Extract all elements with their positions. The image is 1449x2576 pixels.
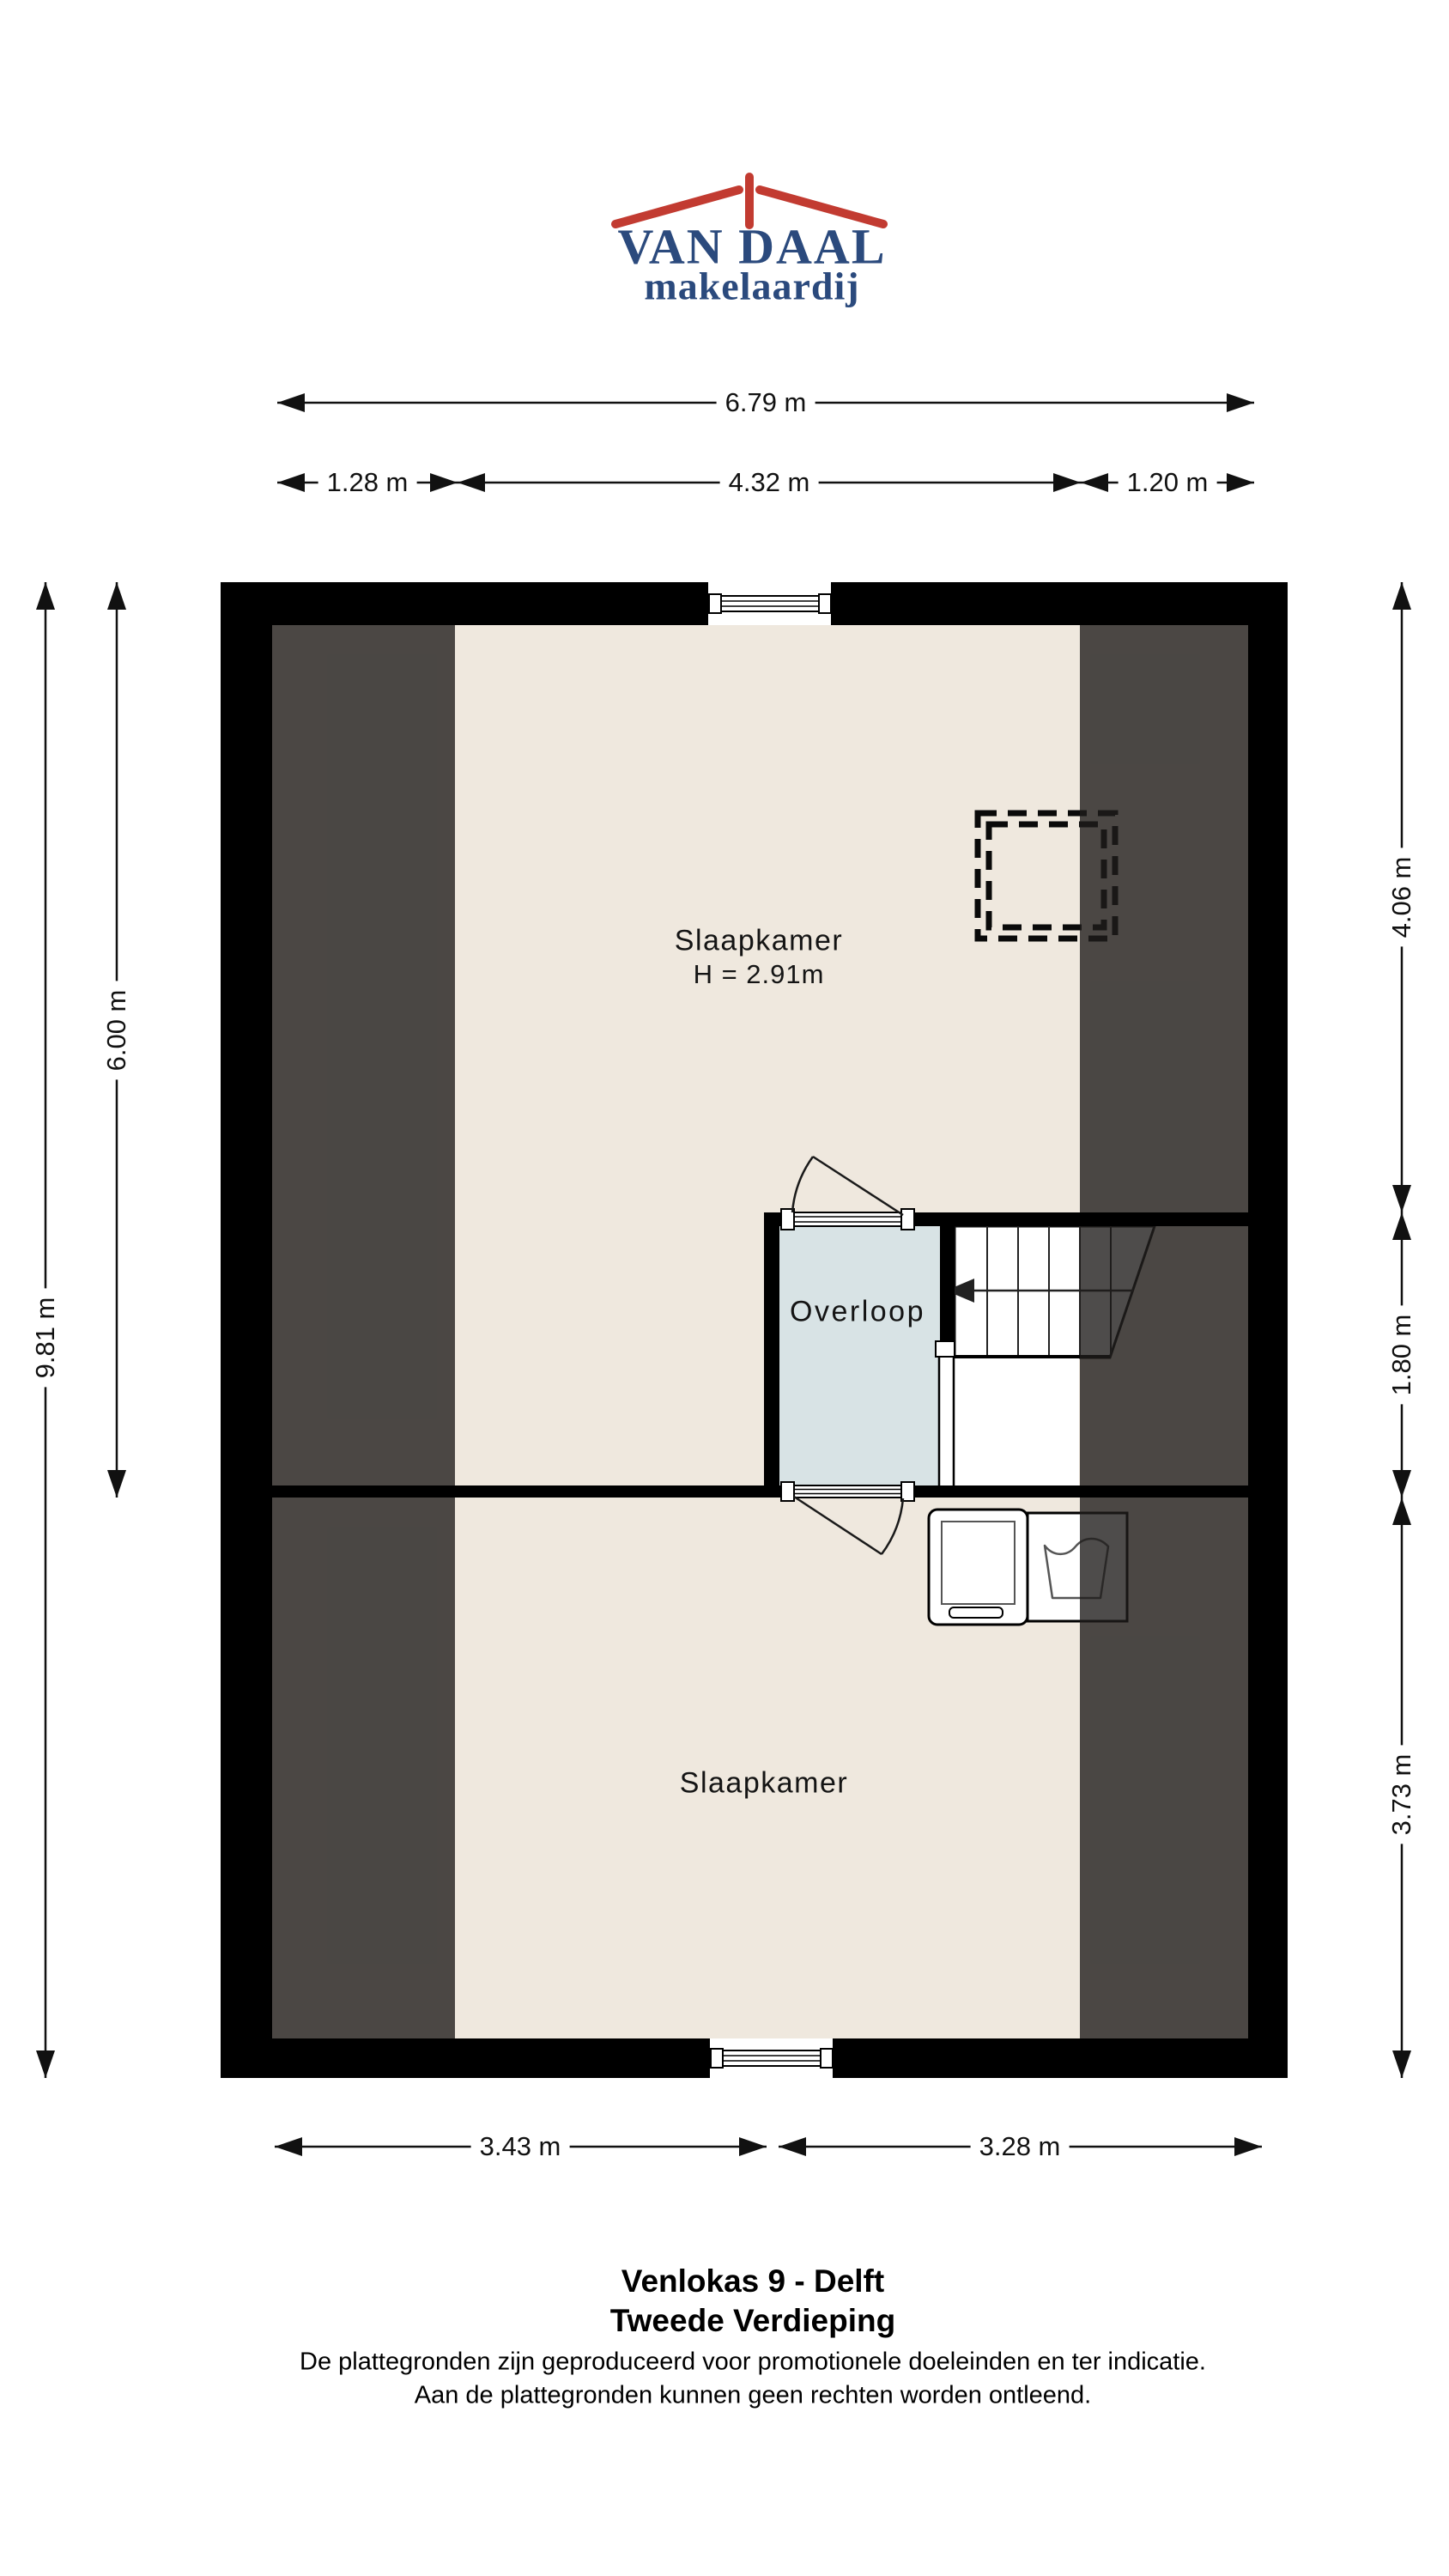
dim-bottom-left: 3.43 m	[471, 2131, 570, 2162]
room-label-bedroom-bottom: Slaapkamer	[680, 1767, 848, 1801]
washing-machine-icon	[929, 1510, 1028, 1625]
dim-right-bottom: 3.73 m	[1386, 1746, 1417, 1844]
room-height-bedroom-top: H = 2.91m	[694, 959, 825, 990]
footer-floor-name: Tweede Verdieping	[610, 2303, 895, 2339]
footer-disclaimer-line1: De plattegronden zijn geproduceerd voor …	[300, 2348, 1206, 2377]
footer-address: Venlokas 9 - Delft	[621, 2263, 884, 2300]
dim-left-upper: 6.00 m	[101, 981, 132, 1080]
dim-top-center: 4.32 m	[720, 467, 819, 498]
footer-disclaimer-line2: Aan de plattegronden kunnen geen rechten…	[415, 2382, 1091, 2410]
window-top	[708, 582, 831, 625]
room-label-bedroom-top: Slaapkamer	[675, 925, 843, 958]
room-label-hallway: Overloop	[790, 1296, 925, 1329]
floorplan-drawing	[0, 0, 1449, 2576]
dim-right-top: 4.06 m	[1386, 848, 1417, 947]
dim-right-middle: 1.80 m	[1386, 1306, 1417, 1405]
window-bottom	[710, 2038, 833, 2078]
dim-bottom-right: 3.28 m	[971, 2131, 1070, 2162]
sloped-ceiling-zone-left	[272, 625, 455, 2038]
logo-tagline: makelaardij	[644, 264, 859, 309]
dim-left-total: 9.81 m	[30, 1289, 61, 1388]
railing	[938, 1358, 955, 1485]
dim-top-right: 1.20 m	[1119, 467, 1217, 498]
sloped-ceiling-zone-right	[1080, 625, 1248, 2038]
hallway-floor	[779, 1226, 940, 1485]
dim-top-left: 1.28 m	[318, 467, 417, 498]
dim-top-total: 6.79 m	[717, 387, 815, 418]
floorplan-page: VAN DAAL makelaardij 6.79 m 1.28 m 4.32 …	[0, 0, 1449, 2576]
